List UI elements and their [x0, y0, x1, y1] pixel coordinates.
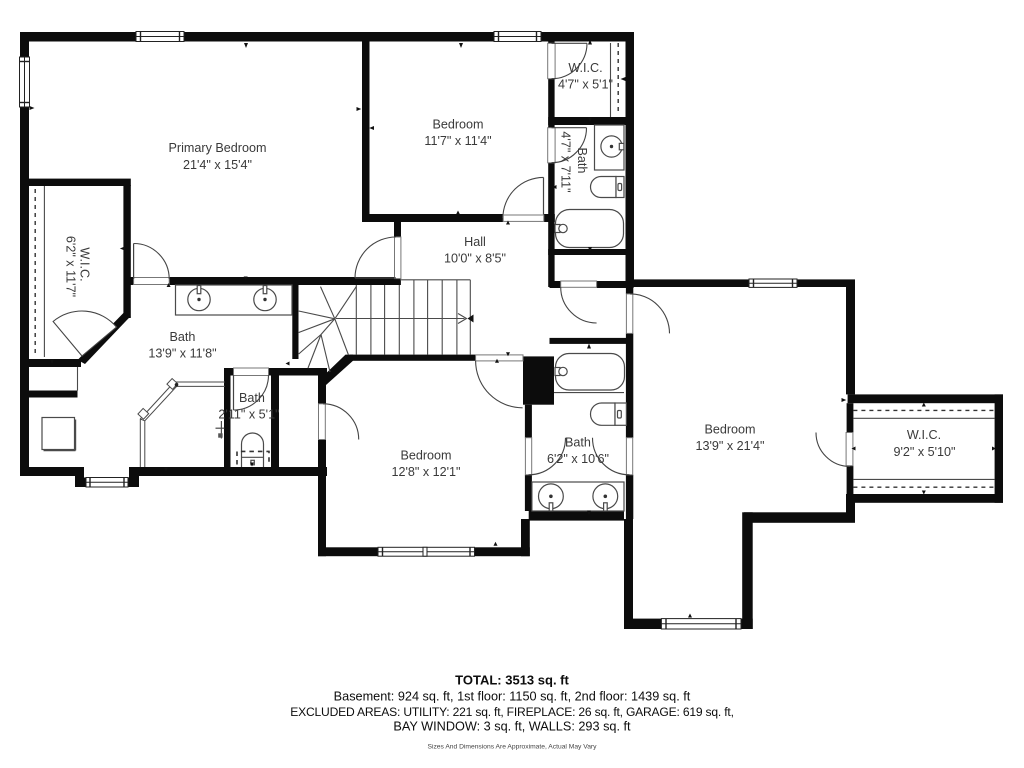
svg-text:12'8" x 12'1": 12'8" x 12'1": [391, 465, 460, 479]
svg-text:Basement: 924 sq. ft, 1st floo: Basement: 924 sq. ft, 1st floor: 1150 sq…: [334, 690, 691, 704]
svg-text:EXCLUDED AREAS: UTILITY: 221 s: EXCLUDED AREAS: UTILITY: 221 sq. ft, FIR…: [290, 705, 733, 719]
svg-text:Bath: Bath: [575, 148, 589, 174]
svg-text:BAY WINDOW: 3 sq. ft, WALLS: 2: BAY WINDOW: 3 sq. ft, WALLS: 293 sq. ft: [393, 720, 631, 734]
svg-text:Bedroom: Bedroom: [400, 449, 451, 463]
svg-text:Bath: Bath: [239, 391, 265, 405]
svg-text:2'11" x 5'1": 2'11" x 5'1": [218, 408, 279, 422]
svg-text:4'7" x 5'1": 4'7" x 5'1": [558, 78, 613, 92]
svg-text:13'9" x 11'8": 13'9" x 11'8": [148, 347, 216, 361]
svg-text:W.I.C.: W.I.C.: [78, 247, 92, 281]
svg-text:Hall: Hall: [464, 235, 486, 249]
svg-text:W.I.C.: W.I.C.: [568, 61, 602, 75]
svg-text:21'4" x 15'4": 21'4" x 15'4": [183, 158, 252, 172]
svg-text:Primary Bedroom: Primary Bedroom: [169, 141, 267, 155]
svg-text:10'0" x 8'5": 10'0" x 8'5": [444, 252, 506, 266]
svg-text:Sizes And Dimensions Are Appro: Sizes And Dimensions Are Approximate, Ac…: [428, 744, 598, 751]
svg-text:11'7" x 11'4": 11'7" x 11'4": [424, 134, 491, 148]
svg-text:6'2" x 10'6": 6'2" x 10'6": [547, 452, 609, 466]
svg-text:Bath: Bath: [170, 330, 196, 344]
svg-text:9'2" x 5'10": 9'2" x 5'10": [893, 445, 955, 459]
svg-text:Bedroom: Bedroom: [704, 423, 755, 437]
svg-text:6'2" x 11'7": 6'2" x 11'7": [64, 236, 78, 297]
svg-text:TOTAL: 3513 sq. ft: TOTAL: 3513 sq. ft: [455, 673, 569, 688]
svg-text:Bath: Bath: [565, 436, 591, 450]
svg-text:4'7" x 7'11": 4'7" x 7'11": [559, 131, 573, 192]
svg-text:Bedroom: Bedroom: [432, 118, 483, 132]
svg-text:W.I.C.: W.I.C.: [907, 428, 941, 442]
svg-text:13'9" x 21'4": 13'9" x 21'4": [695, 439, 764, 453]
